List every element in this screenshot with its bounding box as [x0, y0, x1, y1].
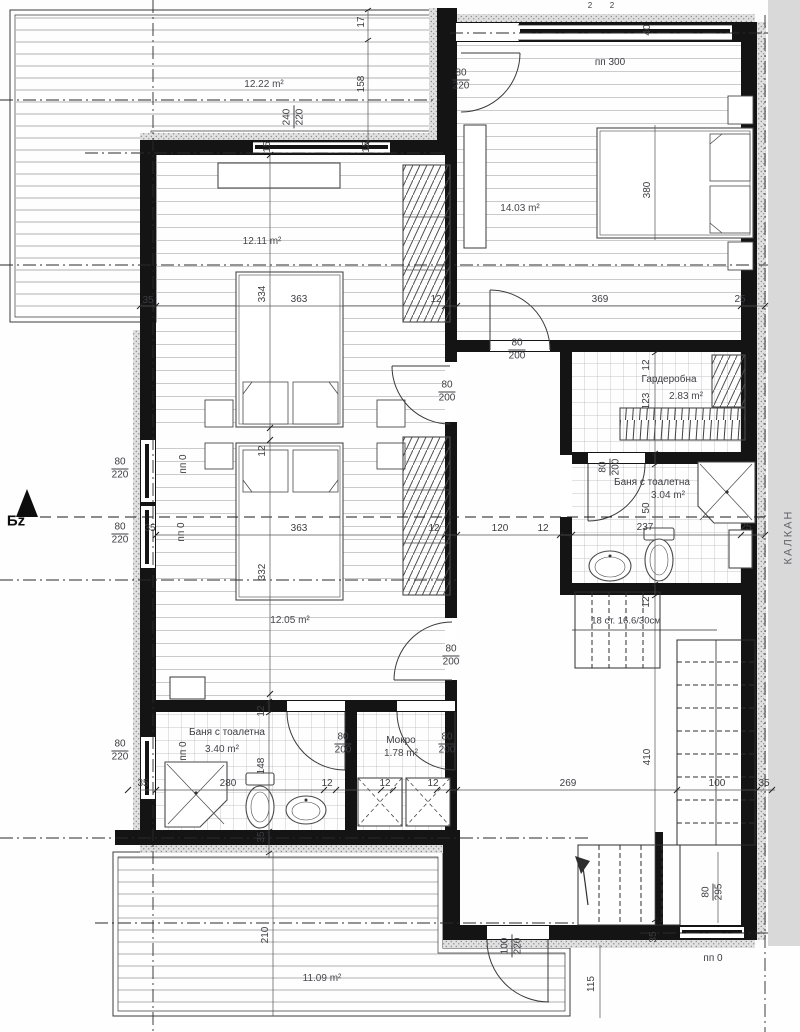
- floor-plan: 12.22 m² 14.03 m² 12.11 m² Гардеробна 2.…: [0, 0, 800, 1032]
- floor-plan-drawing: [0, 0, 800, 1032]
- toilet-upper: [644, 528, 674, 581]
- shelf: [170, 677, 205, 699]
- shower-lower: [165, 762, 227, 827]
- wardrobe-hatched-1: [403, 165, 450, 322]
- sink-upper: [589, 551, 631, 581]
- toilet-lower: [246, 773, 274, 828]
- dresser: [218, 163, 340, 188]
- margin-strip: [768, 0, 800, 946]
- stairs: [572, 592, 755, 925]
- wardrobe-hatched-2: [403, 437, 450, 595]
- stair-direction-arrow: [583, 867, 588, 905]
- shower-upper: [698, 462, 755, 523]
- section-marker-triangle: [16, 489, 38, 517]
- closet-rail: [620, 408, 745, 440]
- sink-lower: [286, 796, 326, 824]
- dresser-right-room: [464, 125, 486, 248]
- closet-unit-side: [712, 355, 745, 407]
